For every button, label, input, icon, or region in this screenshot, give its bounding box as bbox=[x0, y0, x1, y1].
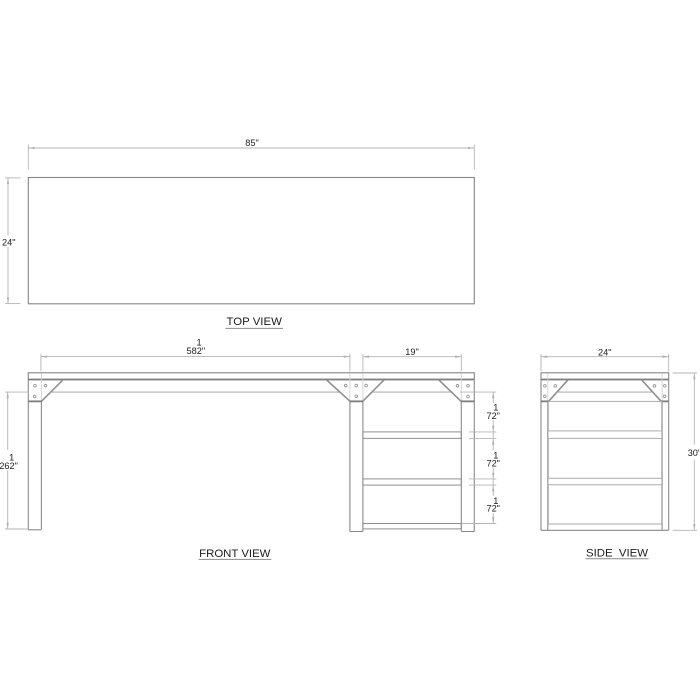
svg-text:85": 85" bbox=[245, 138, 258, 148]
svg-text:1: 1 bbox=[493, 496, 498, 506]
svg-text:262": 262" bbox=[0, 461, 18, 471]
svg-text:24": 24" bbox=[598, 348, 611, 358]
svg-text:SIDE VIEW: SIDE VIEW bbox=[586, 547, 648, 559]
svg-text:1: 1 bbox=[493, 451, 498, 461]
svg-text:1: 1 bbox=[196, 337, 201, 347]
svg-text:1: 1 bbox=[9, 452, 14, 462]
svg-text:30": 30" bbox=[688, 448, 700, 458]
svg-text:FRONT VIEW: FRONT VIEW bbox=[199, 548, 271, 560]
svg-text:1: 1 bbox=[493, 403, 498, 413]
svg-text:19": 19" bbox=[405, 347, 418, 357]
svg-text:582": 582" bbox=[187, 346, 206, 356]
svg-text:TOP VIEW: TOP VIEW bbox=[227, 316, 283, 328]
svg-text:24": 24" bbox=[2, 238, 15, 248]
